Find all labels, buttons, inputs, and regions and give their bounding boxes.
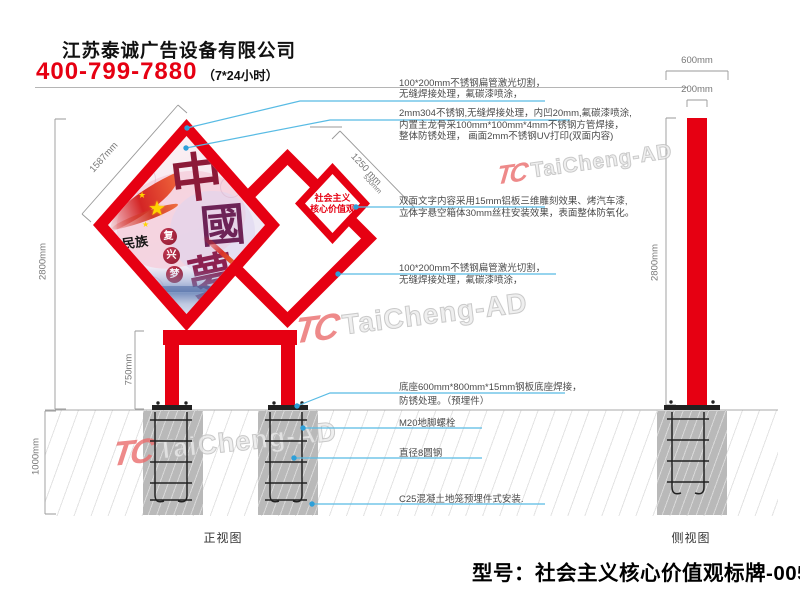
annotation-line: M20地脚螺栓: [399, 418, 455, 429]
annotation-block: 直径8圆钢: [399, 448, 442, 459]
leader-dots: [183, 125, 358, 506]
dim-label-200: 200mm: [667, 84, 727, 95]
annotation-line: 防锈处理。（预埋件）: [399, 395, 582, 409]
model-title: 型号：社会主义核心价值观标牌-0056: [472, 556, 800, 586]
dim-label-2800-side: 2800mm: [650, 233, 661, 293]
annotation-line: 2mm304不锈钢,无缝焊接处理，内凹20mm,氟碳漆喷涂,: [399, 108, 632, 120]
annotation-line: 立体字悬空箱体30mm丝柱安装效果，表面整体防氧化。: [399, 208, 634, 220]
annotation-block: 2mm304不锈钢,无缝焊接处理，内凹20mm,氟碳漆喷涂, 内置主龙骨采100…: [399, 108, 632, 143]
annotation-line: C25混凝土地笼预埋件式安装.: [399, 494, 524, 505]
annotation-line: 底座600mm*800mm*15mm钢板底座焊接，: [399, 381, 582, 395]
annotation-line: 双面文字内容采用15mm铝板三维雕刻效果、烤汽车漆,: [399, 196, 634, 208]
drawing-sheet: 江苏泰诚广告设备有限公司 400-799-7880 （7*24小时）: [0, 0, 800, 600]
side-view-label: 侧视图: [661, 529, 721, 546]
annotation-line: 内置主龙骨采100mm*100mm*4mm不锈钢方管焊接，: [399, 120, 632, 132]
annotation-line: 100*200mm不锈钢扁管激光切割，: [399, 263, 545, 275]
annotation-block: 100*200mm不锈钢扁管激光切割， 无缝焊接处理，氟碳漆喷涂，: [399, 78, 545, 100]
annotation-block: 底座600mm*800mm*15mm钢板底座焊接， 防锈处理。（预埋件）: [399, 381, 582, 409]
annotation-leaders: [186, 101, 570, 504]
dim-label-600: 600mm: [667, 55, 727, 66]
annotation-block: C25混凝土地笼预埋件式安装.: [399, 494, 524, 505]
dim-label-2800-front: 2800mm: [38, 232, 49, 292]
front-view-label: 正视图: [193, 529, 253, 546]
annotation-line: 无缝焊接处理，氟碳漆喷涂，: [399, 89, 545, 100]
annotation-line: 100*200mm不锈钢扁管激光切割，: [399, 78, 545, 89]
annotation-block: M20地脚螺栓: [399, 418, 455, 429]
annotation-block: 100*200mm不锈钢扁管激光切割， 无缝焊接处理，氟碳漆喷涂，: [399, 263, 545, 287]
dim-label-1000: 1000mm: [31, 427, 42, 487]
annotation-line: 直径8圆钢: [399, 448, 442, 459]
dim-label-750: 750mm: [124, 340, 135, 400]
annotation-line: 无缝焊接处理，氟碳漆喷涂，: [399, 275, 545, 287]
annotation-block: 双面文字内容采用15mm铝板三维雕刻效果、烤汽车漆, 立体字悬空箱体30mm丝柱…: [399, 196, 634, 220]
annotation-line: 整体防锈处理， 画面2mm不锈钢UV打印(双面内容): [399, 131, 632, 143]
